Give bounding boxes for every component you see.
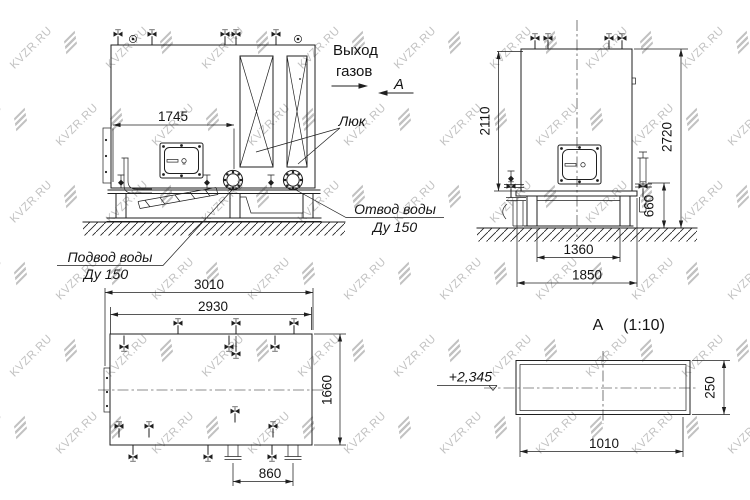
door-lock-icon (581, 163, 585, 167)
dim-1010-text: 1010 (589, 436, 619, 451)
boiler-body-front (111, 45, 315, 188)
gas-outlet-line1: Выход (333, 42, 378, 59)
water-outlet-line2: Ду 150 (371, 219, 417, 235)
front-door (160, 143, 203, 178)
ground-hatch (83, 223, 345, 236)
dim-1745: 1745 (113, 109, 234, 182)
section-letter: А (393, 76, 404, 93)
dim-2930: 2930 (111, 299, 312, 334)
door-lock-icon (182, 159, 186, 163)
water-inlet-line1: Подвод воды (68, 249, 154, 265)
side-door (558, 145, 601, 184)
elevation-mark: +2,345 (437, 369, 497, 391)
section-view: А (1:10) +2,345 250 1010 (437, 317, 730, 457)
dim-2720-text: 2720 (660, 122, 675, 152)
dim-250-text: 250 (703, 376, 718, 399)
inlet-pipe-assembly (503, 171, 526, 226)
section-title-letter: А (593, 317, 604, 334)
lifting-lug-icon (129, 35, 136, 42)
dim-1745-text: 1745 (158, 109, 188, 124)
front-view: 1745 Выход газов А Люк Отвод воды Ду 150 (57, 30, 444, 282)
dim-1660: 1660 (314, 334, 346, 445)
drawing-canvas: 1745 Выход газов А Люк Отвод воды Ду 150 (0, 0, 750, 500)
boiler-body-plan (110, 334, 312, 445)
drawing-sheet: KVZR.RUKVZR.RUKVZR.RUKVZR.RUKVZR.RUKVZR.… (0, 0, 750, 500)
top-valve-icons (114, 30, 302, 45)
dim-250: 250 (692, 361, 730, 415)
water-inlet-line2: Ду 150 (82, 266, 128, 282)
gas-outlet-label: Выход газов (332, 42, 378, 89)
dim-1360-text: 1360 (563, 242, 593, 257)
dim-2110-text: 2110 (478, 106, 493, 135)
dim-660-text: 660 (642, 195, 657, 218)
ground-hatch (477, 229, 697, 242)
gas-duct-panels (240, 56, 307, 167)
dim-660: 660 (642, 183, 671, 228)
water-inlet-flange (223, 170, 242, 189)
dim-2930-text: 2930 (198, 299, 228, 314)
elevation-text: +2,345 (449, 369, 492, 385)
dim-860: 860 (233, 463, 293, 486)
top-valve-icons (531, 34, 627, 49)
dim-1660-text: 1660 (320, 375, 335, 405)
drain-valve-icons (118, 175, 275, 188)
dim-3010-text: 3010 (194, 277, 224, 292)
door-handle (565, 164, 576, 167)
gas-flow-arrow-icon (359, 83, 369, 89)
dim-1850-text: 1850 (572, 268, 602, 283)
bottom-pipe-stubs (225, 445, 302, 460)
left-plate (103, 128, 111, 183)
gas-outlet-line2: газов (336, 63, 372, 80)
support-frame-side (516, 191, 637, 226)
dim-3010: 3010 (105, 277, 313, 366)
dim-860-text: 860 (259, 466, 282, 481)
section-cut-mark: А (378, 76, 413, 96)
section-title-scale: (1:10) (623, 317, 665, 334)
hatch-label-text: Люк (338, 113, 367, 129)
water-outlet-flange (283, 170, 302, 189)
dim-1010: 1010 (520, 417, 683, 457)
lifting-lug-icon (294, 35, 301, 42)
water-outlet-line1: Отвод воды (354, 201, 436, 217)
plan-view: 3010 2930 1660 860 (98, 277, 346, 486)
ladder (138, 188, 218, 209)
door-handle (167, 160, 178, 163)
boiler-body-side (521, 49, 632, 191)
side-view: 2110 2720 660 1360 1850 (477, 20, 697, 287)
dim-2110: 2110 (478, 52, 524, 192)
